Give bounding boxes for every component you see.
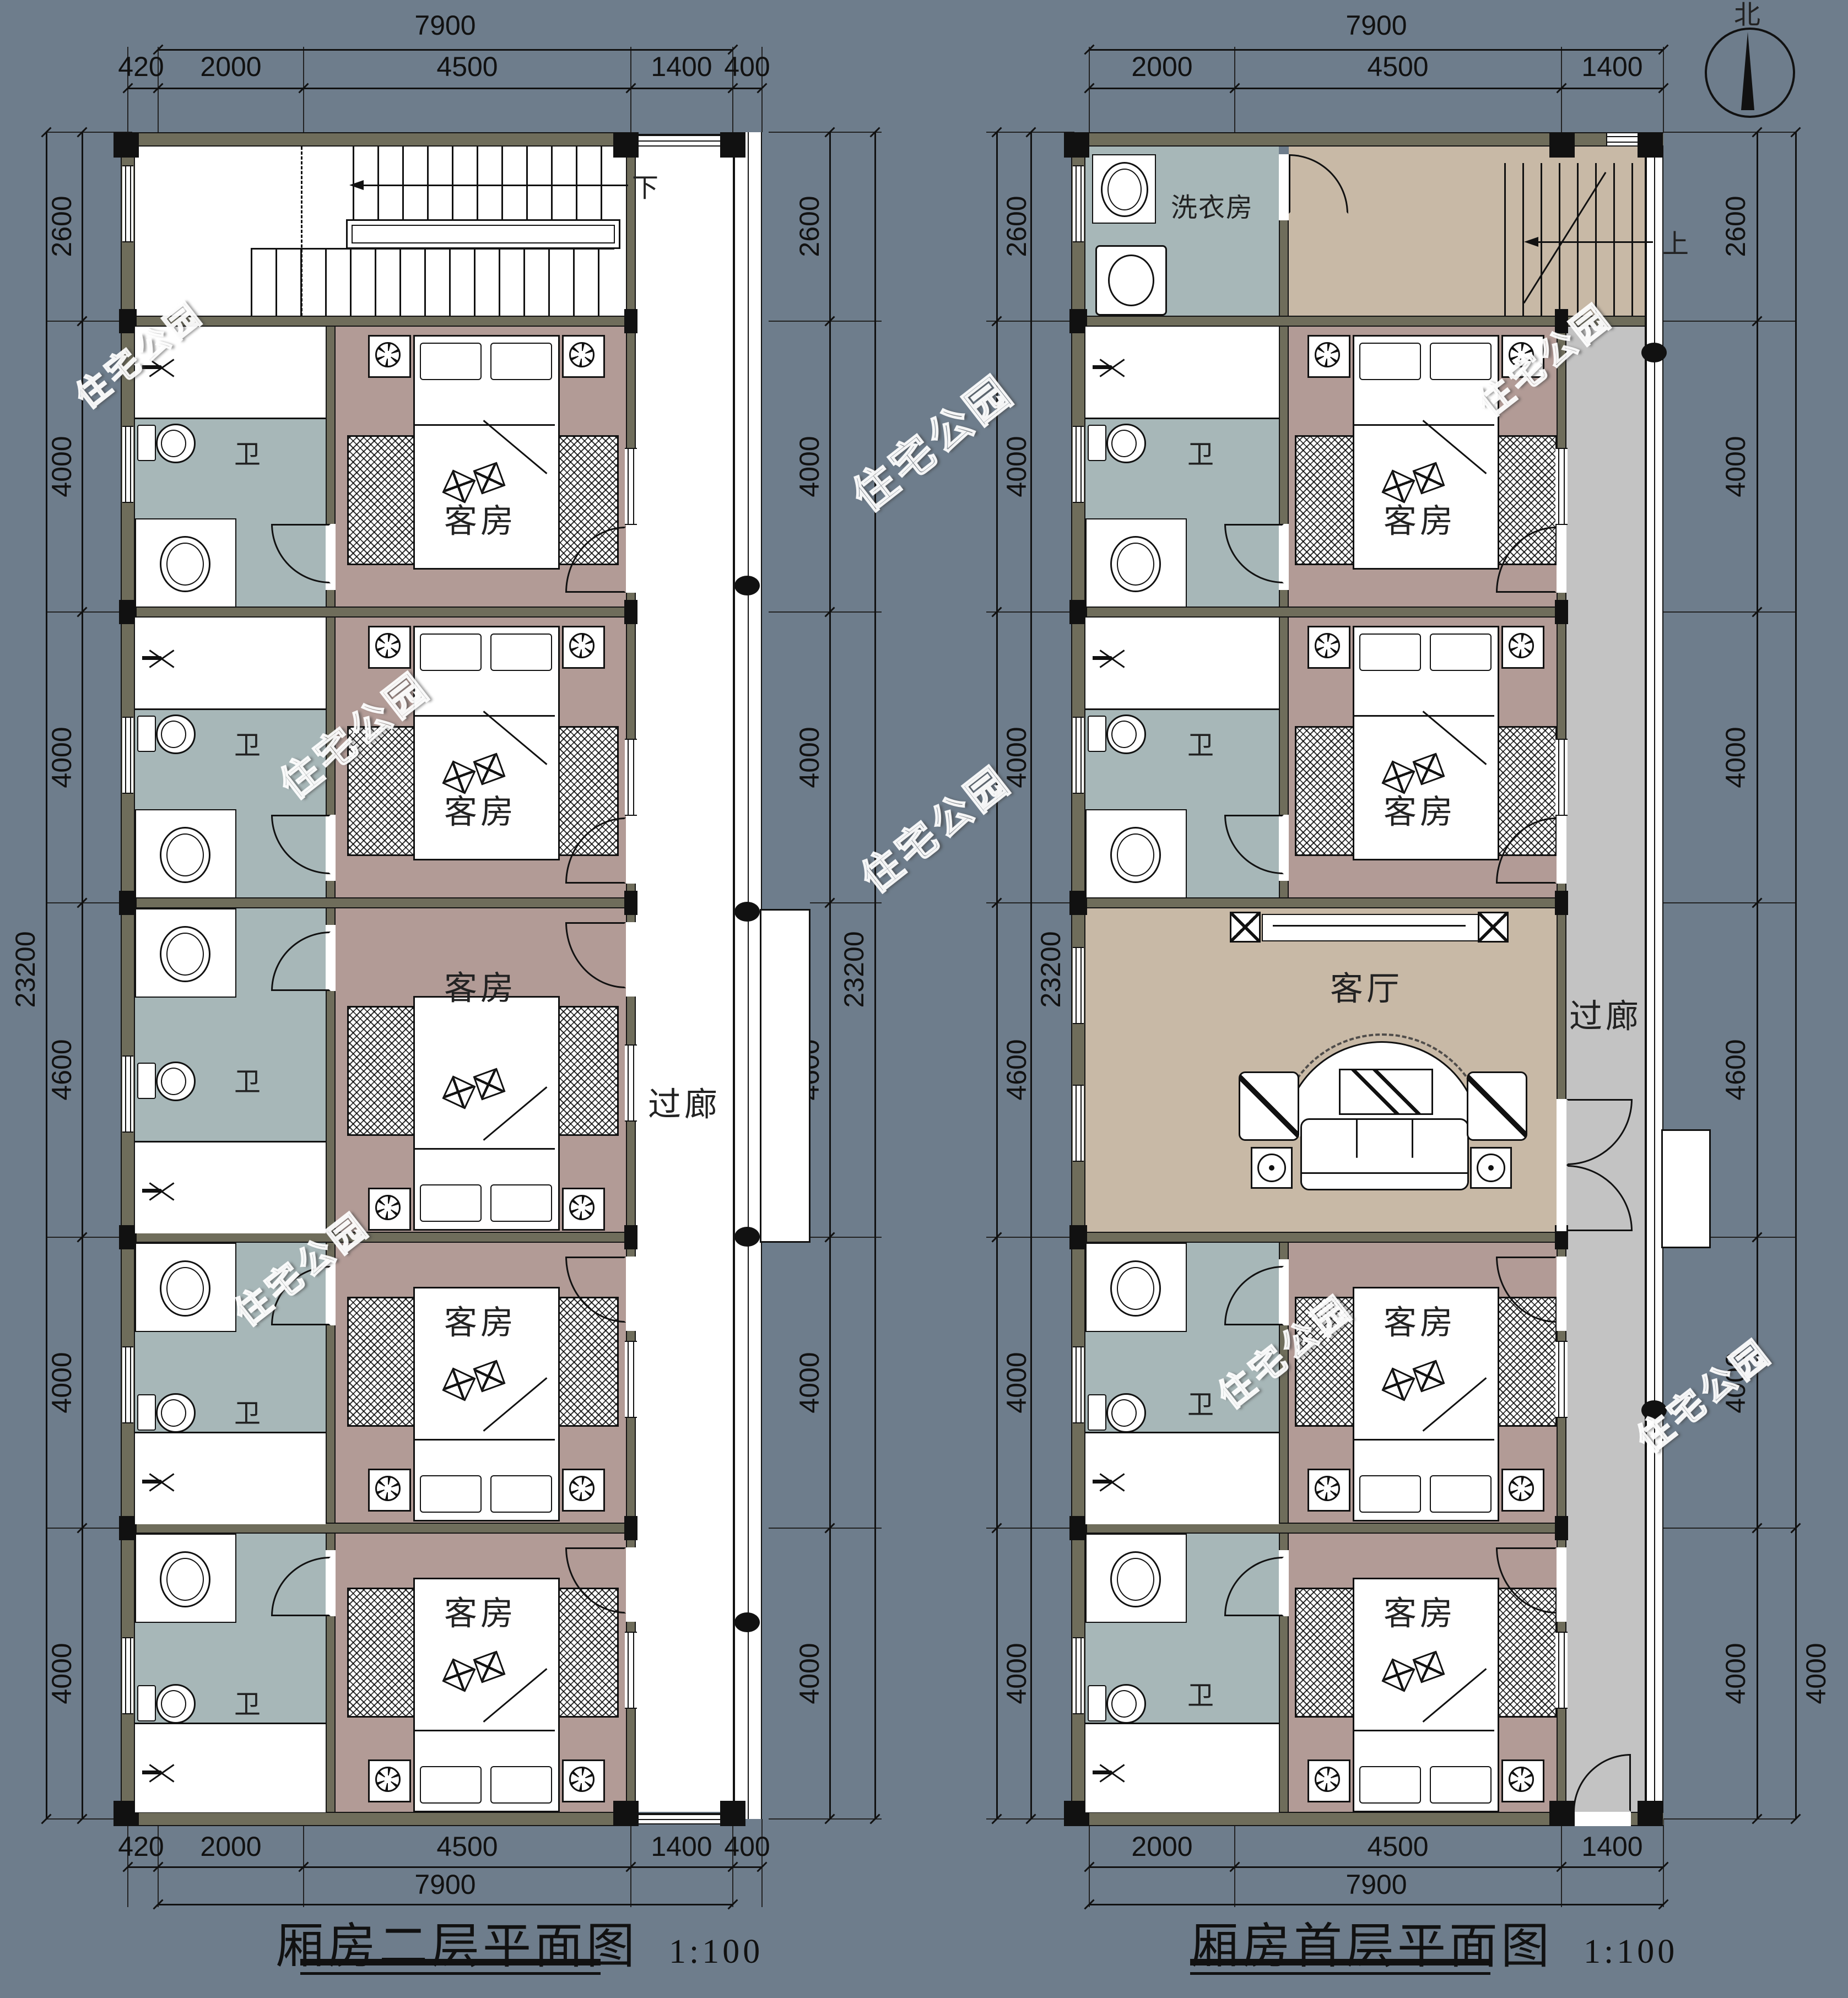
bathroom-label: 卫: [234, 1391, 262, 1430]
corridor-label: 过廊: [648, 1078, 721, 1126]
dim-label: 4000: [1001, 1643, 1033, 1704]
dim-line: [46, 132, 47, 1819]
shower-icon: [142, 1464, 182, 1499]
dim-label: 2600: [793, 196, 825, 257]
column: [624, 309, 637, 333]
window: [122, 165, 133, 242]
ext-line: [1663, 1819, 1664, 1907]
wall: [326, 590, 336, 607]
blanket-line: [1354, 1730, 1494, 1731]
sink-icon: [1110, 536, 1161, 592]
door-opening: [1279, 154, 1289, 220]
pillow: [490, 343, 552, 380]
window: [625, 1044, 637, 1122]
window: [1555, 1341, 1568, 1418]
column: [1064, 132, 1089, 158]
left-plan-scale: 1:100: [669, 1933, 763, 1970]
ext-line: [303, 1819, 304, 1907]
railing: [636, 1813, 733, 1824]
toilet-icon: [1106, 424, 1146, 463]
dim-label: 4600: [1001, 1039, 1033, 1100]
guest-room-label: 客房: [444, 1296, 517, 1344]
dim-label: 23200: [1035, 931, 1067, 1008]
wall: [1279, 618, 1289, 815]
column: [624, 600, 637, 624]
pillow: [1430, 1475, 1492, 1513]
guest-room-label: 客房: [1384, 1587, 1456, 1635]
window: [1073, 1637, 1084, 1714]
floor-plan-sheet: 7900 420 2000 4500 1400 400 420 2000 450…: [0, 0, 1848, 1998]
ext-line: [1663, 132, 1796, 133]
lamp-icon: [569, 633, 595, 658]
wall: [1279, 881, 1289, 897]
toilet-icon: [156, 714, 196, 754]
bathroom-label: 卫: [234, 432, 262, 471]
bathroom-label: 卫: [1187, 723, 1215, 762]
dim-label: 4000: [1720, 1643, 1752, 1704]
wall: [1077, 1523, 1562, 1534]
corridor-bump: [760, 909, 810, 1243]
window: [1073, 426, 1084, 503]
right-plan-title-text: 厢房首层平面图: [1190, 1920, 1553, 1974]
toilet-icon: [156, 1684, 196, 1724]
column: [1555, 1516, 1568, 1540]
ext-line: [769, 611, 882, 613]
tv-line: [1273, 925, 1466, 927]
door-opening: [1557, 1547, 1566, 1622]
shower-icon: [1093, 1464, 1132, 1499]
railing-column-dot: [734, 902, 760, 922]
column: [119, 600, 137, 624]
shower-icon: [142, 1755, 182, 1790]
ext-line: [1089, 1819, 1090, 1907]
pillow: [1359, 1475, 1421, 1513]
dim-label: 1400: [651, 51, 712, 83]
wall: [326, 908, 336, 925]
ext-line: [1234, 1819, 1235, 1907]
lamp-icon: [569, 1476, 595, 1501]
column: [720, 1801, 745, 1826]
railing-column-dot: [1641, 343, 1667, 362]
window: [1073, 717, 1084, 794]
wall: [126, 1523, 626, 1534]
toilet-icon: [156, 1393, 196, 1433]
dim-label: 2600: [1720, 196, 1752, 257]
door-opening: [626, 809, 636, 884]
dim-line: [1089, 88, 1663, 89]
wall: [1279, 1616, 1289, 1812]
dim-line: [158, 1904, 733, 1905]
wall: [1279, 590, 1289, 607]
door-opening: [626, 1257, 636, 1331]
guest-room-label: 客房: [444, 962, 517, 1010]
pillow: [490, 1184, 552, 1222]
blanket-line: [415, 1730, 555, 1731]
pillow: [420, 633, 482, 671]
dim-label: 7900: [1346, 1869, 1407, 1900]
armchair: [1467, 1071, 1527, 1141]
bathroom-label: 卫: [1187, 1383, 1215, 1421]
stair-arrowhead: [1524, 237, 1538, 247]
wall: [1279, 1243, 1289, 1259]
pillow: [420, 343, 482, 380]
toilet-tank: [137, 425, 156, 461]
wall: [1077, 1232, 1562, 1243]
ext-line: [1663, 902, 1796, 903]
pillow: [420, 1184, 482, 1222]
door-opening: [1557, 1099, 1566, 1231]
lamp-icon: [1509, 1767, 1534, 1792]
column: [1549, 132, 1575, 158]
column: [1069, 891, 1087, 915]
guest-room-label: 客房: [1384, 786, 1456, 833]
dim-label: 4500: [1367, 51, 1428, 83]
sofa: [1300, 1118, 1469, 1190]
guest-room-label: 客房: [444, 495, 517, 543]
column: [1069, 1516, 1087, 1540]
guest-room-label: 客房: [444, 1587, 517, 1635]
lamp-icon: [1315, 633, 1340, 658]
pillow: [1430, 633, 1492, 671]
ext-line: [810, 1237, 882, 1238]
dim-line: [128, 1866, 762, 1868]
dim-label: 4500: [1367, 1831, 1428, 1862]
window: [625, 1632, 637, 1709]
toilet-icon: [1106, 714, 1146, 754]
dim-label: 1400: [1581, 51, 1642, 83]
dim-label: 2000: [1131, 51, 1192, 83]
stair-handrail: [346, 219, 620, 249]
dim-label: 400: [724, 1831, 770, 1862]
column: [1069, 1225, 1087, 1249]
dim-label: 2000: [200, 51, 261, 83]
shower-icon: [1093, 350, 1132, 385]
living-room-label: 客厅: [1330, 962, 1403, 1010]
window: [625, 1341, 637, 1418]
lamp-icon: [1509, 1476, 1534, 1501]
window: [625, 448, 637, 525]
sink-icon: [160, 1551, 210, 1607]
dim-label: 4000: [1800, 1643, 1832, 1704]
ext-line: [630, 1819, 631, 1907]
ext-line: [769, 132, 882, 133]
ext-line: [810, 902, 882, 903]
stair-break-line: [301, 147, 302, 316]
dim-label: 4000: [1001, 1352, 1033, 1413]
window: [1555, 739, 1568, 816]
shower-icon: [142, 641, 182, 676]
corridor-bump: [1661, 1129, 1711, 1248]
sink-icon: [1110, 827, 1161, 883]
railing-column-dot: [734, 1227, 760, 1247]
dim-label: 7900: [414, 1869, 475, 1900]
toilet-tank: [1088, 1685, 1106, 1721]
blanket-line: [415, 1148, 555, 1150]
window: [122, 717, 133, 794]
dim-label: 2600: [1001, 196, 1033, 257]
dim-line: [1089, 1866, 1663, 1868]
door-opening: [626, 1547, 636, 1622]
title-underline: [300, 1972, 601, 1975]
wall: [326, 327, 336, 524]
dim-label: 2000: [1131, 1831, 1192, 1862]
blanket-line: [1354, 715, 1494, 717]
sink-icon: [160, 536, 210, 592]
column: [1638, 1801, 1663, 1826]
toilet-icon: [156, 424, 196, 463]
column: [1549, 1801, 1575, 1826]
wall: [126, 897, 626, 908]
right-plan-title: 厢房首层平面图 1:100: [1190, 1907, 1678, 1977]
column: [1069, 309, 1087, 333]
dim-label: 4000: [1720, 727, 1752, 788]
sink-icon: [1110, 1551, 1161, 1607]
bathroom-label: 卫: [234, 1060, 262, 1098]
column: [624, 1225, 637, 1249]
dim-label: 4000: [1720, 436, 1752, 497]
wall: [326, 881, 336, 897]
bathroom-label: 卫: [234, 1682, 262, 1721]
shower-icon: [1093, 1755, 1132, 1790]
stair-treads: [251, 248, 614, 316]
column: [119, 1516, 137, 1540]
dim-label: 1400: [651, 1831, 712, 1862]
railing-column-dot: [734, 1612, 760, 1632]
title-underline: [300, 1959, 601, 1965]
sink-icon: [160, 827, 210, 883]
ext-line: [769, 321, 882, 322]
blanket-line: [1354, 424, 1494, 426]
window: [122, 426, 133, 503]
toilet-tank: [137, 1685, 156, 1721]
column: [624, 891, 637, 915]
column: [1555, 600, 1568, 624]
toilet-tank: [1088, 716, 1106, 752]
wall: [326, 1325, 336, 1523]
lamp-icon: [375, 1476, 401, 1501]
dim-label: 1400: [1581, 1831, 1642, 1862]
blanket-line: [415, 424, 555, 426]
bathroom-label: 卫: [1187, 432, 1215, 471]
stairs-down-label: 下: [632, 166, 660, 204]
column: [720, 132, 745, 158]
wall: [1077, 897, 1562, 908]
stairs-up-label: 上: [1662, 222, 1690, 261]
entry-opening: [1573, 1812, 1631, 1826]
lamp-icon: [1509, 633, 1534, 658]
toilet-tank: [1088, 425, 1106, 461]
lamp-icon: [375, 1767, 401, 1792]
door-opening: [1557, 518, 1566, 593]
dim-label: 23200: [9, 931, 41, 1008]
corridor-floor: [636, 147, 733, 1812]
speaker-icon: [1251, 1147, 1293, 1189]
window: [122, 1346, 133, 1423]
toilet-icon: [1106, 1393, 1146, 1433]
pillow: [490, 633, 552, 671]
toilet-tank: [137, 716, 156, 752]
dim-line: [1757, 132, 1758, 1819]
window: [1073, 165, 1084, 242]
tv-speaker: [1230, 912, 1261, 943]
window: [1555, 448, 1568, 525]
lamp-icon: [375, 1195, 401, 1220]
lamp-icon: [375, 633, 401, 658]
door-opening: [626, 922, 636, 997]
wall: [326, 1616, 336, 1812]
toilet-icon: [156, 1062, 196, 1101]
dim-label: 4600: [1720, 1039, 1752, 1100]
wall: [121, 1812, 636, 1826]
pillow: [490, 1475, 552, 1513]
dim-line: [1089, 1904, 1663, 1905]
pillow: [490, 1766, 552, 1804]
corridor-label: 过廊: [1569, 990, 1642, 1038]
lamp-icon: [569, 342, 595, 367]
ext-line: [1663, 1818, 1796, 1820]
guest-room-label: 客房: [1384, 495, 1456, 543]
ext-line: [1663, 611, 1796, 613]
shower-icon: [142, 1173, 182, 1209]
dim-label: 4000: [793, 1352, 825, 1413]
wall: [1279, 1534, 1289, 1550]
wall: [326, 991, 336, 1232]
sink-icon: [1110, 1260, 1161, 1317]
window: [1073, 1085, 1084, 1162]
dim-label: 400: [724, 51, 770, 83]
window: [122, 1637, 133, 1714]
dim-line: [829, 132, 831, 1819]
ext-line: [769, 1528, 882, 1529]
dim-label: 4000: [46, 1643, 78, 1704]
wall: [1077, 607, 1562, 618]
dim-line: [1795, 132, 1797, 1819]
speaker-icon: [1470, 1147, 1512, 1189]
lamp-icon: [569, 1767, 595, 1792]
door-opening: [626, 518, 636, 593]
column: [119, 891, 137, 915]
dim-label: 4500: [436, 1831, 498, 1862]
door-opening: [1557, 1257, 1566, 1331]
door-opening: [1557, 809, 1566, 884]
dim-label: 4500: [436, 51, 498, 83]
lamp-icon: [1315, 342, 1340, 367]
window: [1073, 947, 1084, 1024]
dim-label: 4000: [46, 436, 78, 497]
lamp-icon: [569, 1195, 595, 1220]
title-underline: [1190, 1959, 1490, 1965]
toilet-tank: [137, 1394, 156, 1431]
left-plan-title-text: 厢房二层平面图: [275, 1920, 638, 1974]
guest-room-label: 客房: [1384, 1296, 1456, 1344]
dim-label: 4000: [793, 436, 825, 497]
dim-label: 4000: [793, 1643, 825, 1704]
wall: [1279, 220, 1289, 316]
title-underline: [1190, 1972, 1490, 1975]
bathroom-label: 卫: [234, 723, 262, 762]
sink-icon: [160, 1260, 210, 1317]
laundry-label: 洗衣房: [1171, 186, 1253, 224]
wall: [326, 1534, 336, 1550]
column: [114, 132, 139, 158]
ext-line: [1561, 1819, 1562, 1907]
wall: [1279, 327, 1289, 524]
right-plan-scale: 1:100: [1584, 1933, 1678, 1970]
sink-icon: [160, 926, 210, 982]
wall: [126, 607, 626, 618]
toilet-tank: [1088, 1394, 1106, 1431]
column: [1555, 891, 1568, 915]
dim-label: 4000: [793, 727, 825, 788]
dim-line: [128, 88, 762, 89]
armchair: [1239, 1071, 1299, 1141]
lamp-icon: [375, 342, 401, 367]
pillow: [420, 1766, 482, 1804]
dim-label: 420: [118, 51, 164, 83]
blanket-line: [415, 715, 555, 717]
dim-label: 4600: [46, 1039, 78, 1100]
washing-machine-icon: [1095, 245, 1167, 316]
corridor-railing: [1645, 132, 1663, 1819]
column: [1069, 600, 1087, 624]
blanket-line: [415, 1439, 555, 1441]
pillow: [420, 1475, 482, 1513]
corridor-railing: [733, 132, 762, 1819]
corridor-floor: [1566, 327, 1645, 1812]
dim-label: 2000: [200, 1831, 261, 1862]
ext-line: [1663, 321, 1796, 322]
north-label: 北: [1734, 0, 1761, 31]
column: [613, 132, 639, 158]
lamp-icon: [1315, 1767, 1340, 1792]
pillow: [1359, 1766, 1421, 1804]
window: [625, 739, 637, 816]
toilet-icon: [1106, 1684, 1146, 1724]
railing: [636, 134, 733, 147]
dim-line: [1030, 132, 1032, 1819]
dim-label: 7900: [1346, 9, 1407, 41]
shower-icon: [1093, 641, 1132, 676]
dim-label: 4000: [1001, 436, 1033, 497]
ext-line: [1663, 1528, 1796, 1529]
blanket-line: [1354, 1439, 1494, 1441]
pillow: [1359, 343, 1421, 380]
column: [613, 1801, 639, 1826]
dim-label: 4000: [46, 1352, 78, 1413]
toilet-tank: [137, 1063, 156, 1099]
dim-label: 420: [118, 1831, 164, 1862]
sink-icon: [1101, 162, 1148, 217]
railing-column-dot: [734, 576, 760, 595]
dim-label: 2600: [46, 196, 78, 257]
dim-label: 4000: [46, 727, 78, 788]
lamp-icon: [1315, 1476, 1340, 1501]
column: [119, 1225, 137, 1249]
stair-arrow: [364, 185, 628, 186]
stair-arrow: [1537, 241, 1653, 243]
dim-label: 7900: [414, 9, 475, 41]
pillow: [1430, 1766, 1492, 1804]
left-plan-title: 厢房二层平面图 1:100: [275, 1907, 763, 1977]
guest-room-label: 客房: [444, 786, 517, 833]
column: [1638, 132, 1663, 158]
watermark: 住宅公园: [847, 749, 1022, 903]
tv-speaker: [1478, 912, 1509, 943]
dim-line: [874, 132, 876, 1819]
ext-line: [769, 1818, 882, 1820]
north-needle-icon: [1741, 32, 1754, 110]
stair-arrowhead: [349, 180, 364, 190]
